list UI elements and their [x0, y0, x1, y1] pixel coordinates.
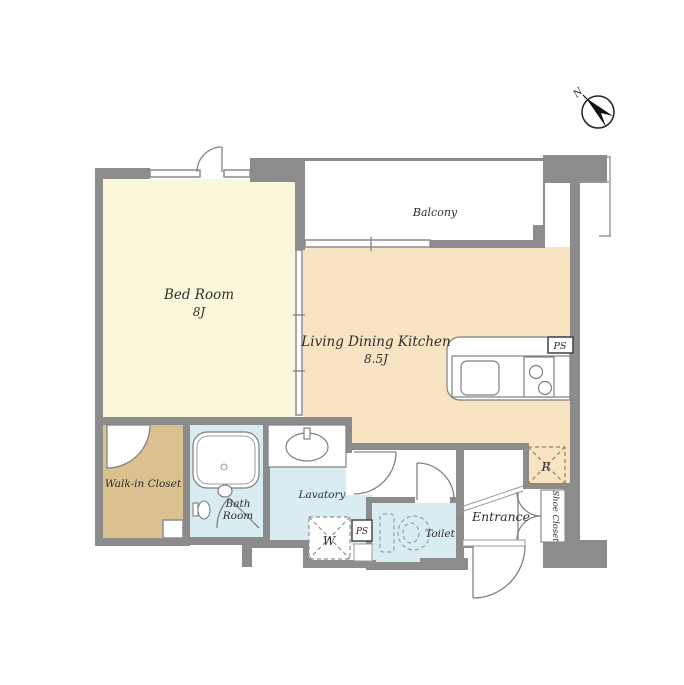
pipe-space-utility-label: PS — [355, 527, 368, 537]
wall-bedroom-ldk — [295, 177, 305, 250]
bedroom-balcony-door — [197, 147, 222, 172]
floor-plan-drawing: Balcony Bed Room 8J Living Dining Kitche… — [0, 0, 684, 685]
wall-ldk-bottom — [346, 443, 523, 450]
wall-top-right-block — [543, 155, 607, 183]
washbasin — [268, 425, 346, 467]
balcony-rail — [305, 158, 545, 161]
closet-pillar-nook — [163, 520, 183, 538]
lavatory-label: Lavatory — [298, 489, 347, 501]
wall-toilet-top — [366, 497, 415, 503]
wall-closet-bath — [183, 425, 190, 546]
toilet-label: Toilet — [425, 528, 455, 540]
kitchen-sink — [461, 361, 499, 395]
wall-right — [570, 183, 580, 488]
wall-left — [95, 168, 103, 545]
bath-label-2: Room — [222, 510, 254, 522]
front-door — [463, 540, 525, 598]
wall-top-left-corner — [95, 168, 150, 179]
entrance-label: Entrance — [471, 509, 530, 524]
north-label: N — [571, 85, 586, 100]
compass: N — [571, 85, 614, 128]
floor-plan-page: Balcony Bed Room 8J Living Dining Kitche… — [0, 0, 684, 685]
shower-fixture — [193, 501, 210, 519]
wall-balcony-corner — [533, 225, 545, 241]
ldk-balcony-sliding-window — [305, 240, 430, 247]
walk-in-closet-label: Walk-in Closet — [105, 478, 182, 490]
ldk-label: Living Dining Kitchen — [300, 334, 450, 350]
bedroom-size: 8J — [193, 305, 207, 319]
lavatory-door — [354, 452, 396, 494]
refrigerator-label: R — [540, 460, 550, 474]
wall-bottom-right-block — [543, 540, 607, 568]
balcony-label: Balcony — [412, 206, 458, 219]
bedroom-label: Bed Room — [163, 287, 234, 303]
shoe-closet-label: Shoe Closet — [550, 490, 560, 542]
wall-step-vertical — [242, 543, 252, 567]
bedroom-window — [150, 170, 200, 177]
pipe-space-kitchen-label: PS — [553, 341, 567, 352]
ldk-size: 8.5J — [364, 352, 389, 366]
wall-closet-bottom — [95, 538, 185, 546]
bathtub — [193, 432, 259, 497]
utility-nook — [354, 544, 372, 561]
wall-bedroom-bottom — [95, 417, 352, 425]
toilet-door — [417, 463, 454, 500]
bedroom-window-2 — [224, 170, 250, 177]
bedroom-ldk-sliding-door — [296, 250, 302, 415]
bath-label-1: Bath — [225, 498, 251, 510]
stove-burner-1 — [530, 366, 543, 379]
stove-burner-2 — [539, 382, 552, 395]
washer-label: W — [323, 534, 337, 548]
wall-ldk-top — [430, 240, 545, 248]
